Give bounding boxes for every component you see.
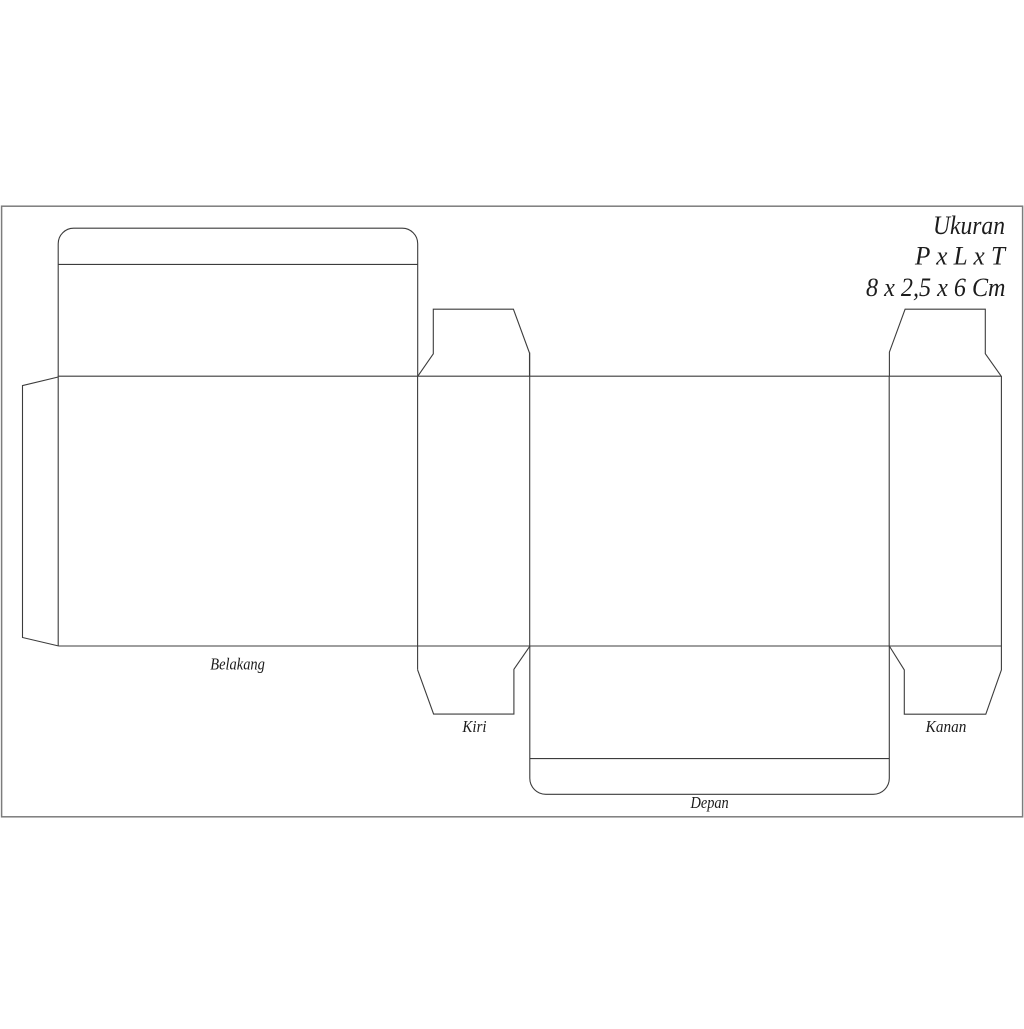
svg-text:P x L x T: P x L x T [914,242,1006,271]
svg-text:Kanan: Kanan [925,717,967,736]
svg-text:Depan: Depan [690,793,729,812]
svg-text:Belakang: Belakang [210,654,265,673]
svg-text:Kiri: Kiri [462,717,487,736]
svg-text:8 x 2,5 x 6 Cm: 8 x 2,5 x 6 Cm [866,273,1006,302]
svg-text:Ukuran: Ukuran [933,211,1005,240]
